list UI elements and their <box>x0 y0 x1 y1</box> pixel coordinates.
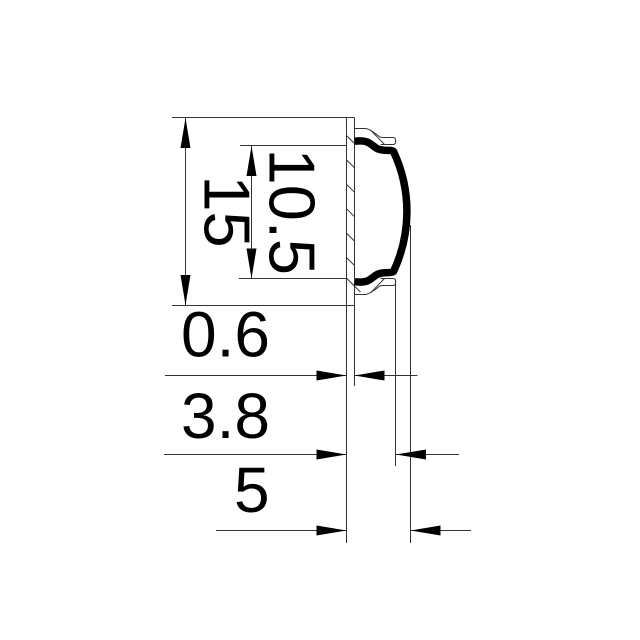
svg-text:3.8: 3.8 <box>181 380 270 452</box>
svg-text:5: 5 <box>234 454 270 526</box>
svg-text:10.5: 10.5 <box>256 149 329 276</box>
svg-text:15: 15 <box>191 175 264 247</box>
svg-text:0.6: 0.6 <box>181 299 270 371</box>
